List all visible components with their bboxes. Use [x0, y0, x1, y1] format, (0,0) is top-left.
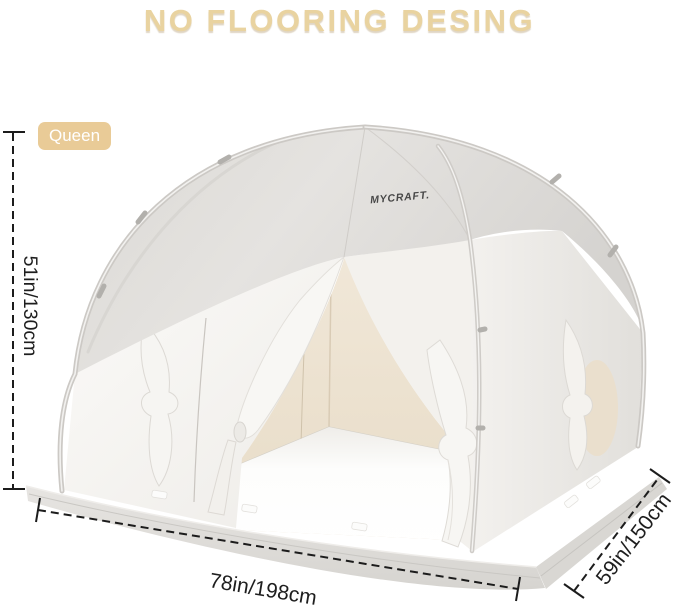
dimension-label-height: 51in/130cm [19, 256, 41, 357]
product-image-canvas: NO FLOORING DESING Queen [0, 0, 679, 611]
tent-illustration: MYCRAFT. 51in/130cm 78in/198cm 59in/150c… [0, 0, 679, 611]
dimension-label-width: 78in/198cm [208, 569, 319, 610]
